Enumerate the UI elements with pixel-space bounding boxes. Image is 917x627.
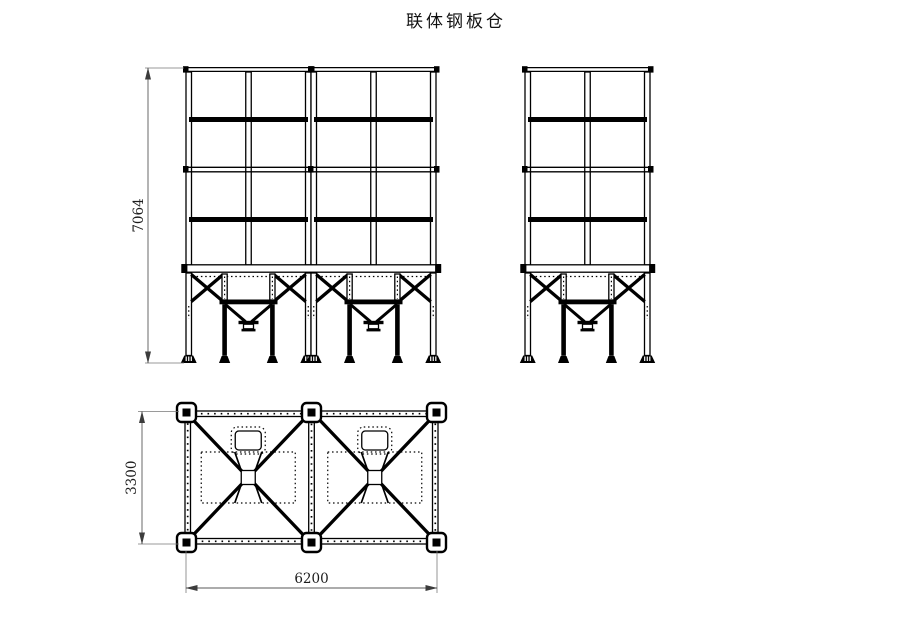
front-elevation-view — [181, 66, 441, 363]
side-support-bay — [520, 273, 655, 363]
dimension-label-depth: 3300 — [124, 461, 140, 495]
plan-column-bottom-left — [177, 533, 196, 552]
side-elevation-view — [520, 66, 655, 363]
drawing-sheet: 联体钢板仓 — [0, 0, 917, 627]
plan-view — [177, 403, 446, 552]
front-support-bay-left — [181, 273, 316, 363]
plan-column-top-left — [177, 403, 196, 422]
plan-column-top-middle — [302, 403, 321, 422]
drawing-title: 联体钢板仓 — [406, 12, 506, 32]
plan-column-bottom-right — [427, 533, 446, 552]
dimension-label-height: 7064 — [131, 198, 147, 232]
technical-drawing: 联体钢板仓 — [0, 0, 917, 627]
dimension-label-width: 6200 — [294, 571, 328, 587]
dimension-overall-height: 7064 — [131, 68, 184, 363]
front-silo-face-right — [308, 66, 440, 265]
side-silo-face — [522, 66, 654, 265]
dimension-plan-width: 6200 — [186, 551, 437, 593]
plan-column-bottom-middle — [302, 533, 321, 552]
dimension-plan-depth: 3300 — [124, 412, 179, 545]
side-platform-beam — [520, 264, 655, 277]
front-silo-face-left — [183, 66, 315, 265]
plan-column-top-right — [427, 403, 446, 422]
front-support-bay-right — [306, 273, 441, 363]
